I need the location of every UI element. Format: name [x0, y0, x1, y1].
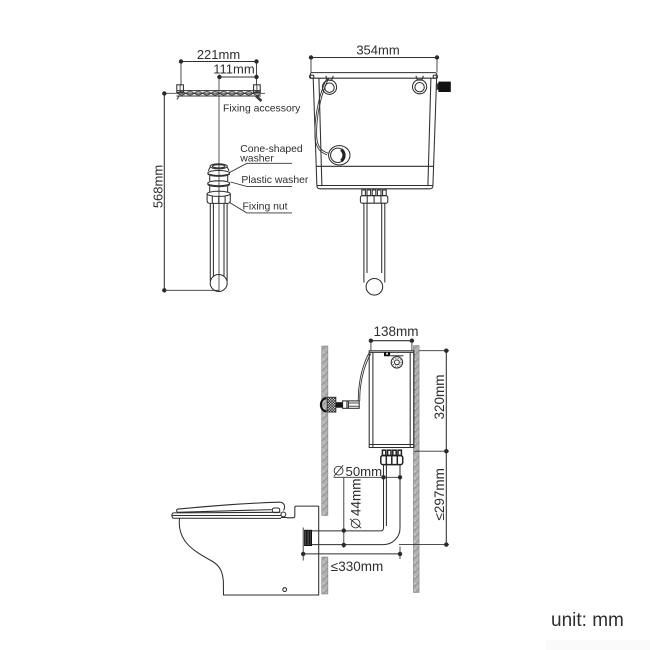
svg-text:Fixing nut: Fixing nut	[243, 201, 288, 212]
svg-text:Plastic washer: Plastic washer	[241, 175, 309, 186]
svg-text:≤330mm: ≤330mm	[331, 559, 383, 574]
svg-text:44mm: 44mm	[348, 478, 363, 516]
svg-text:221mm: 221mm	[197, 47, 240, 62]
svg-text:320mm: 320mm	[432, 374, 447, 419]
svg-text:unit: mm: unit: mm	[551, 610, 624, 631]
svg-text:111mm: 111mm	[213, 62, 254, 77]
svg-text:Fixing accessory: Fixing accessory	[223, 103, 301, 114]
svg-text:≤297mm: ≤297mm	[432, 468, 447, 520]
svg-text:138mm: 138mm	[373, 324, 418, 339]
svg-text:50mm: 50mm	[346, 464, 383, 479]
svg-text:354mm: 354mm	[356, 43, 399, 58]
svg-text:washer: washer	[239, 154, 274, 165]
svg-text:568mm: 568mm	[151, 165, 166, 208]
